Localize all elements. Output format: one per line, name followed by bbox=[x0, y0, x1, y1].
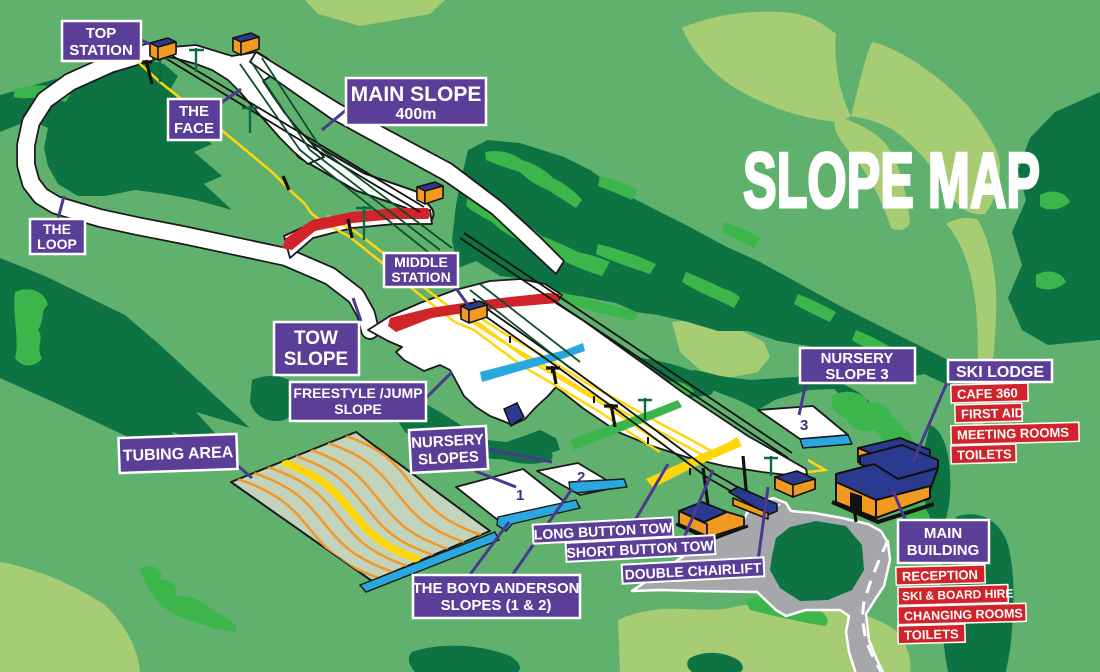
svg-text:SLOPES: SLOPES bbox=[418, 448, 480, 468]
svg-text:TOW: TOW bbox=[294, 328, 338, 349]
svg-text:1: 1 bbox=[516, 487, 524, 504]
svg-text:TOP: TOP bbox=[86, 25, 117, 42]
svg-text:LOOP: LOOP bbox=[37, 236, 77, 252]
svg-text:THE: THE bbox=[179, 103, 209, 120]
svg-text:3: 3 bbox=[800, 417, 808, 434]
svg-text:MAIN SLOPE: MAIN SLOPE bbox=[351, 83, 482, 106]
svg-text:RECEPTION: RECEPTION bbox=[902, 567, 978, 584]
svg-text:FACE: FACE bbox=[174, 120, 214, 137]
svg-text:THE BOYD ANDERSON: THE BOYD ANDERSON bbox=[413, 580, 580, 597]
svg-text:SLOPE: SLOPE bbox=[284, 349, 348, 370]
svg-text:TOILETS: TOILETS bbox=[904, 626, 959, 642]
svg-text:MEETING ROOMS: MEETING ROOMS bbox=[957, 425, 1070, 443]
svg-text:400m: 400m bbox=[396, 106, 437, 123]
svg-text:MAIN: MAIN bbox=[924, 525, 962, 542]
svg-text:CAFE 360: CAFE 360 bbox=[957, 385, 1018, 402]
svg-text:SKI LODGE: SKI LODGE bbox=[956, 364, 1044, 381]
svg-text:SLOPE 3: SLOPE 3 bbox=[825, 366, 888, 383]
svg-text:SLOPES (1 & 2): SLOPES (1 & 2) bbox=[441, 597, 552, 614]
svg-text:TOILETS: TOILETS bbox=[957, 446, 1012, 462]
svg-text:NURSERY: NURSERY bbox=[821, 350, 894, 367]
svg-text:2: 2 bbox=[577, 469, 585, 486]
svg-text:SLOPE MAP: SLOPE MAP bbox=[743, 136, 1040, 224]
svg-text:SKI & BOARD HIRE: SKI & BOARD HIRE bbox=[902, 586, 1014, 603]
svg-text:STATION: STATION bbox=[69, 42, 133, 59]
svg-text:THE: THE bbox=[43, 221, 71, 237]
svg-text:STATION: STATION bbox=[391, 269, 450, 285]
svg-text:SLOPE: SLOPE bbox=[334, 401, 381, 417]
svg-text:MIDDLE: MIDDLE bbox=[394, 254, 448, 270]
svg-text:FREESTYLE /JUMP: FREESTYLE /JUMP bbox=[293, 385, 422, 401]
svg-text:BUILDING: BUILDING bbox=[907, 542, 980, 559]
svg-text:FIRST AID: FIRST AID bbox=[961, 405, 1024, 422]
